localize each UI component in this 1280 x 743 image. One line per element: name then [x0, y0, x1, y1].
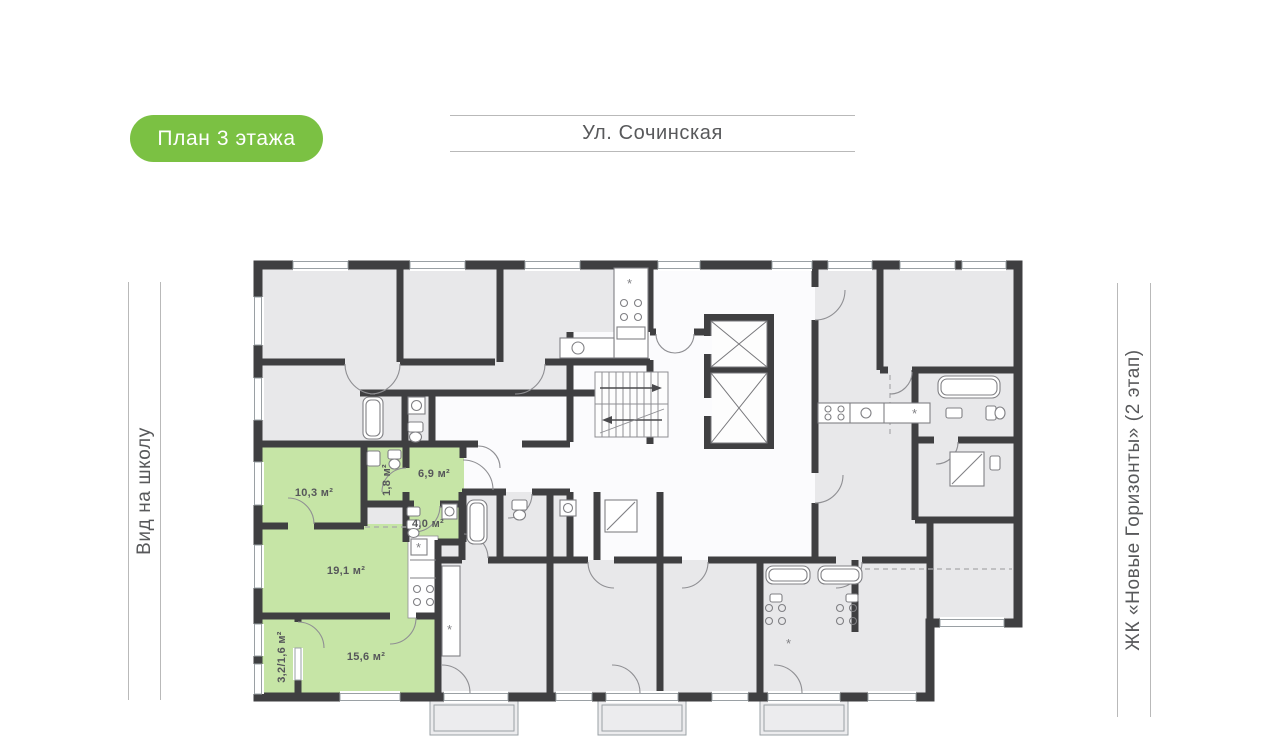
window-icon	[252, 297, 264, 345]
bathtub-icon	[467, 500, 487, 544]
window-icon	[768, 691, 840, 703]
fridge-icon: *	[447, 622, 452, 637]
washer-icon	[408, 397, 425, 414]
window-icon	[444, 691, 508, 703]
room-area-label: 15,6 м²	[347, 651, 385, 663]
window-icon	[658, 259, 700, 271]
window-icon	[525, 259, 580, 271]
window-icon	[772, 259, 812, 271]
window-icon	[556, 691, 592, 703]
room-area-label: 1,8 м²	[381, 464, 393, 496]
room-area-label: 6,9 м²	[418, 468, 450, 480]
window-icon	[293, 648, 303, 680]
window-icon	[340, 691, 400, 703]
fridge-icon: *	[627, 276, 632, 291]
bathtub-icon	[363, 397, 383, 439]
sink-icon	[407, 507, 420, 516]
fridge-icon: *	[786, 636, 791, 651]
window-icon	[252, 624, 264, 656]
window-icon	[252, 462, 264, 505]
window-icon	[252, 378, 264, 420]
toilet-icon	[408, 422, 423, 442]
sink-icon	[946, 408, 962, 418]
bathtub-icon	[766, 566, 810, 584]
room-area-label: 3,2/1,6 м²	[276, 631, 288, 683]
window-icon	[410, 259, 465, 271]
toilet-icon	[986, 406, 1005, 420]
elevator-shaft	[704, 314, 774, 449]
stairs-icon	[595, 372, 668, 437]
bathtub-icon	[938, 376, 1000, 398]
bathtub-icon	[818, 566, 862, 584]
window-icon	[252, 664, 264, 694]
room-area-label: 4,0 м²	[412, 518, 444, 530]
fridge-icon: *	[912, 406, 917, 421]
washer-icon	[442, 504, 457, 519]
shower-icon	[605, 500, 637, 532]
sink-icon	[367, 451, 380, 466]
fridge-icon: *	[416, 540, 421, 555]
shower-icon	[950, 452, 984, 486]
window-icon	[868, 691, 916, 703]
kitchen-counter	[442, 566, 460, 656]
window-icon	[293, 259, 348, 271]
balconies	[430, 701, 848, 735]
toilet-icon	[512, 500, 527, 520]
window-icon	[252, 545, 264, 588]
window-icon	[962, 259, 1006, 271]
floor-plan-canvas: * * * * * 10,3 м² 1,8 м² 6,9 м² 4,0 м² 1…	[0, 0, 1280, 743]
window-icon	[940, 617, 1004, 629]
window-icon	[828, 259, 872, 271]
room-area-label: 10,3 м²	[295, 487, 333, 499]
window-icon	[900, 259, 955, 271]
floor-plan-page: План 3 этажа Ул. Сочинская Вид на школу …	[0, 0, 1280, 743]
washer-icon	[560, 500, 576, 516]
room-area-label: 19,1 м²	[327, 565, 365, 577]
toilet-icon	[990, 456, 1000, 470]
window-icon	[606, 691, 678, 703]
window-icon	[712, 691, 748, 703]
